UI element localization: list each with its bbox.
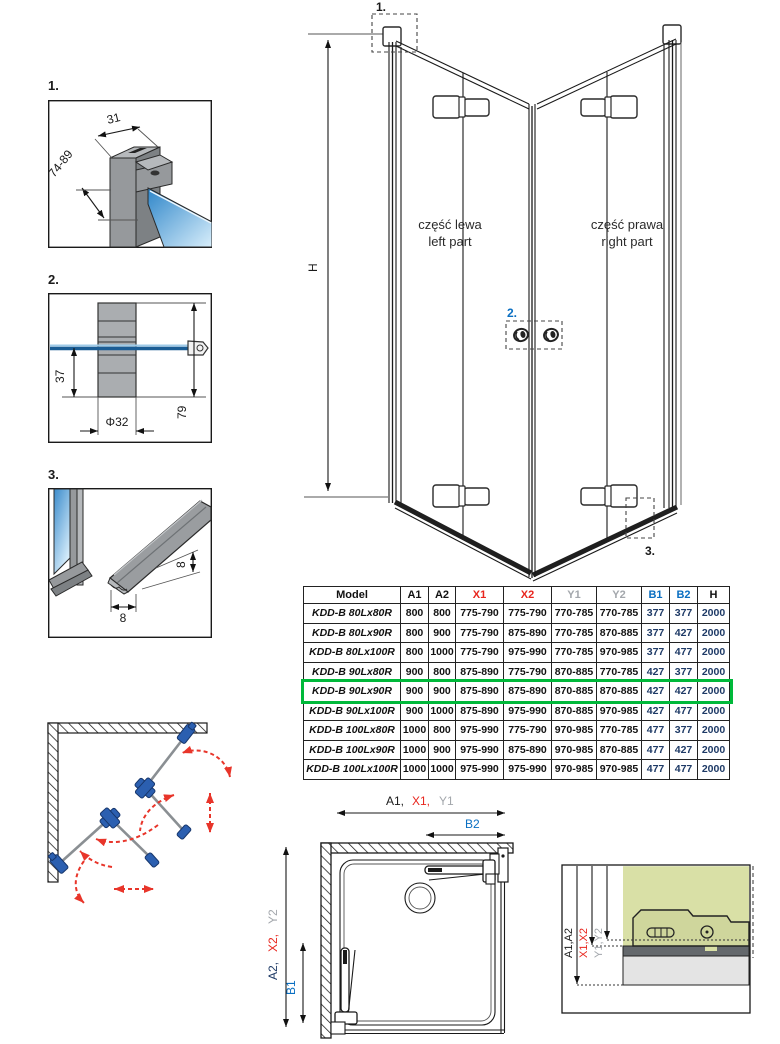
- value-cell: 800: [429, 721, 456, 741]
- value-cell: 427: [670, 623, 698, 643]
- dim-b2-text: B2: [465, 817, 480, 831]
- model-cell: KDD-B 90Lx100R: [304, 701, 401, 721]
- value-cell: 800: [401, 643, 429, 663]
- technical-data-sheet: 1. 31 74-89 2.: [0, 0, 780, 1044]
- column-header-y2: Y2: [597, 587, 642, 604]
- table-row: KDD-B 80Lx90R800900775-790875-890770-785…: [304, 623, 730, 643]
- value-cell: 377: [642, 623, 670, 643]
- dim-phi32-text: Φ32: [106, 415, 129, 429]
- dim-37-text: 37: [53, 369, 67, 383]
- value-cell: 2000: [698, 721, 730, 741]
- value-cell: 975-990: [456, 740, 504, 760]
- main-enclosure-drawing: H: [300, 0, 702, 595]
- value-cell: 1000: [401, 760, 429, 780]
- value-cell: 870-885: [552, 682, 597, 702]
- value-cell: 900: [429, 682, 456, 702]
- model-cell: KDD-B 100Lx90R: [304, 740, 401, 760]
- folding-schematic: [38, 713, 253, 931]
- dim-8w-text: 8: [120, 611, 127, 625]
- knob-left: [513, 327, 530, 342]
- table-row: KDD-B 80Lx100R8001000775-790975-990770-7…: [304, 643, 730, 663]
- value-cell: 477: [642, 721, 670, 741]
- dimension-b1: B1: [284, 943, 303, 1023]
- value-cell: 1000: [401, 721, 429, 741]
- value-cell: 870-885: [597, 623, 642, 643]
- value-cell: 1000: [429, 760, 456, 780]
- value-cell: 377: [642, 604, 670, 624]
- value-cell: 970-985: [597, 760, 642, 780]
- table-row: KDD-B 90Lx80R900800875-890775-790870-885…: [304, 662, 730, 682]
- dimension-a1-x1-y1: A1, X1, Y1: [337, 794, 505, 813]
- value-cell: 2000: [698, 682, 730, 702]
- value-cell: 770-785: [597, 604, 642, 624]
- column-header-x1: X1: [456, 587, 504, 604]
- value-cell: 427: [670, 682, 698, 702]
- size-table: ModelA1A2X1X2Y1Y2B1B2HKDD-B 80Lx80R80080…: [303, 586, 730, 780]
- door-panels: [60, 735, 186, 863]
- model-cell: KDD-B 80Lx90R: [304, 623, 401, 643]
- drain: [405, 883, 435, 913]
- hinge-markers: [47, 721, 198, 874]
- value-cell: 900: [401, 682, 429, 702]
- value-cell: 477: [642, 740, 670, 760]
- folded-door-left: [331, 948, 357, 1034]
- corner-post: [529, 104, 535, 578]
- dim-8h-text: 8: [174, 561, 188, 568]
- dim-y1-text: Y1: [439, 794, 454, 808]
- table-row: KDD-B 100Lx100R10001000975-990975-990970…: [304, 760, 730, 780]
- value-cell: 377: [670, 721, 698, 741]
- value-cell: 975-990: [504, 760, 552, 780]
- value-cell: 875-890: [456, 682, 504, 702]
- value-cell: 427: [642, 682, 670, 702]
- value-cell: 970-985: [552, 760, 597, 780]
- model-cell: KDD-B 90Lx80R: [304, 662, 401, 682]
- value-cell: 870-885: [597, 740, 642, 760]
- table-row: KDD-B 100Lx90R1000900975-990875-890970-9…: [304, 740, 730, 760]
- value-cell: 770-785: [597, 721, 642, 741]
- dim-a1a2-text: A1,A2: [563, 928, 575, 958]
- shower-tray: [331, 853, 505, 1034]
- table-row: KDD-B 90Lx100R9001000875-890975-990870-8…: [304, 701, 730, 721]
- value-cell: 800: [401, 604, 429, 624]
- dim-x2-text: X2,: [266, 934, 280, 952]
- table-row: KDD-B 80Lx80R800800775-790775-790770-785…: [304, 604, 730, 624]
- hinge-right-top: [581, 96, 637, 118]
- dim-x1-text: X1,: [412, 794, 430, 808]
- value-cell: 770-785: [552, 623, 597, 643]
- model-cell: KDD-B 80Lx100R: [304, 643, 401, 663]
- value-cell: 427: [670, 740, 698, 760]
- column-header-h: H: [698, 587, 730, 604]
- profile-base-strip: [623, 946, 749, 956]
- column-header-a1: A1: [401, 587, 429, 604]
- right-part-label-pl: część prawa: [591, 217, 664, 232]
- value-cell: 770-785: [552, 604, 597, 624]
- value-cell: 870-885: [552, 701, 597, 721]
- detail-1-drawing: 31 74-89: [48, 100, 212, 248]
- value-cell: 377: [670, 662, 698, 682]
- value-cell: 900: [429, 740, 456, 760]
- value-cell: 377: [642, 643, 670, 663]
- knob-right: [543, 327, 560, 342]
- dim-y2-text: Y2: [266, 909, 280, 924]
- value-cell: 970-985: [552, 721, 597, 741]
- wall-profile-section: A1,A2 X1,X2 Y1,Y2: [555, 858, 780, 1018]
- value-cell: 800: [429, 604, 456, 624]
- plan-view: A1, X1, Y1 B2: [255, 790, 537, 1044]
- value-cell: 975-990: [456, 760, 504, 780]
- value-cell: 975-990: [504, 643, 552, 663]
- value-cell: 875-890: [504, 682, 552, 702]
- value-cell: 775-790: [504, 604, 552, 624]
- value-cell: 800: [401, 623, 429, 643]
- callout-2: 2.: [506, 306, 562, 349]
- dim-H-text: H: [306, 263, 320, 272]
- table-header-row: ModelA1A2X1X2Y1Y2B1B2H: [304, 587, 730, 604]
- model-cell: KDD-B 100Lx100R: [304, 760, 401, 780]
- model-cell: KDD-B 80Lx80R: [304, 604, 401, 624]
- dim-y1y2-text: Y1,Y2: [593, 928, 605, 958]
- dim-a1-text: A1,: [386, 794, 404, 808]
- value-cell: 775-790: [504, 662, 552, 682]
- value-cell: 875-890: [456, 662, 504, 682]
- hinge-left-bottom: [433, 485, 489, 507]
- detail-2-drawing: 37 Φ32 79: [48, 293, 212, 443]
- value-cell: 775-790: [504, 721, 552, 741]
- value-cell: 775-790: [456, 604, 504, 624]
- dim-x1x2-text: X1,X2: [578, 928, 590, 958]
- value-cell: 2000: [698, 740, 730, 760]
- lower-profile-strip: [623, 956, 749, 985]
- corner-walls: [48, 723, 207, 882]
- column-header-y1: Y1: [552, 587, 597, 604]
- value-cell: 770-785: [597, 662, 642, 682]
- table-row: KDD-B 100Lx80R1000800975-990775-790970-9…: [304, 721, 730, 741]
- model-cell: KDD-B 100Lx80R: [304, 721, 401, 741]
- callout-3-label: 3.: [645, 544, 655, 558]
- value-cell: 900: [401, 701, 429, 721]
- value-cell: 970-985: [597, 643, 642, 663]
- detail-3-label: 3.: [48, 467, 59, 482]
- callout-2-label: 2.: [507, 306, 517, 320]
- column-header-b2: B2: [670, 587, 698, 604]
- dimension-H: H: [304, 34, 388, 497]
- value-cell: 970-985: [597, 701, 642, 721]
- value-cell: 377: [670, 604, 698, 624]
- table-row: KDD-B 90Lx90R900900875-890875-890870-885…: [304, 682, 730, 702]
- column-header-a2: A2: [429, 587, 456, 604]
- value-cell: 870-885: [597, 682, 642, 702]
- value-cell: 477: [670, 701, 698, 721]
- value-cell: 427: [642, 701, 670, 721]
- dimension-a2-x2-y2: A2, X2, Y2: [266, 847, 286, 1027]
- value-cell: 477: [642, 760, 670, 780]
- value-cell: 1000: [429, 701, 456, 721]
- value-cell: 2000: [698, 604, 730, 624]
- value-cell: 900: [429, 623, 456, 643]
- value-cell: 2000: [698, 623, 730, 643]
- value-cell: 770-785: [552, 643, 597, 663]
- value-cell: 975-990: [456, 721, 504, 741]
- hinge-right-bottom: [581, 485, 637, 507]
- value-cell: 875-890: [456, 701, 504, 721]
- value-cell: 870-885: [552, 662, 597, 682]
- dim-b1-text: B1: [284, 980, 298, 995]
- value-cell: 2000: [698, 662, 730, 682]
- value-cell: 875-890: [504, 740, 552, 760]
- value-cell: 1000: [401, 740, 429, 760]
- value-cell: 900: [401, 662, 429, 682]
- right-part-label-en: right part: [601, 234, 653, 249]
- callout-1-label: 1.: [376, 0, 386, 14]
- value-cell: 2000: [698, 760, 730, 780]
- dim-a2-text: A2,: [266, 962, 280, 980]
- dim-79-text: 79: [175, 405, 189, 419]
- value-cell: 775-790: [456, 643, 504, 663]
- model-cell: KDD-B 90Lx90R: [304, 682, 401, 702]
- detail-1-label: 1.: [48, 78, 59, 93]
- value-cell: 970-985: [552, 740, 597, 760]
- value-cell: 477: [670, 760, 698, 780]
- column-header-b1: B1: [642, 587, 670, 604]
- value-cell: 477: [670, 643, 698, 663]
- detail-2-label: 2.: [48, 272, 59, 287]
- column-header-x2: X2: [504, 587, 552, 604]
- value-cell: 2000: [698, 701, 730, 721]
- value-cell: 2000: [698, 643, 730, 663]
- hinge-left-top: [433, 96, 489, 118]
- value-cell: 775-790: [456, 623, 504, 643]
- value-cell: 800: [429, 662, 456, 682]
- left-part-label-en: left part: [428, 234, 472, 249]
- value-cell: 875-890: [504, 623, 552, 643]
- left-part-label-pl: część lewa: [418, 217, 482, 232]
- value-cell: 427: [642, 662, 670, 682]
- value-cell: 975-990: [504, 701, 552, 721]
- dimension-b2: B2: [426, 817, 505, 835]
- column-header-model: Model: [304, 587, 401, 604]
- value-cell: 1000: [429, 643, 456, 663]
- detail-3-drawing: 8 8: [48, 488, 212, 638]
